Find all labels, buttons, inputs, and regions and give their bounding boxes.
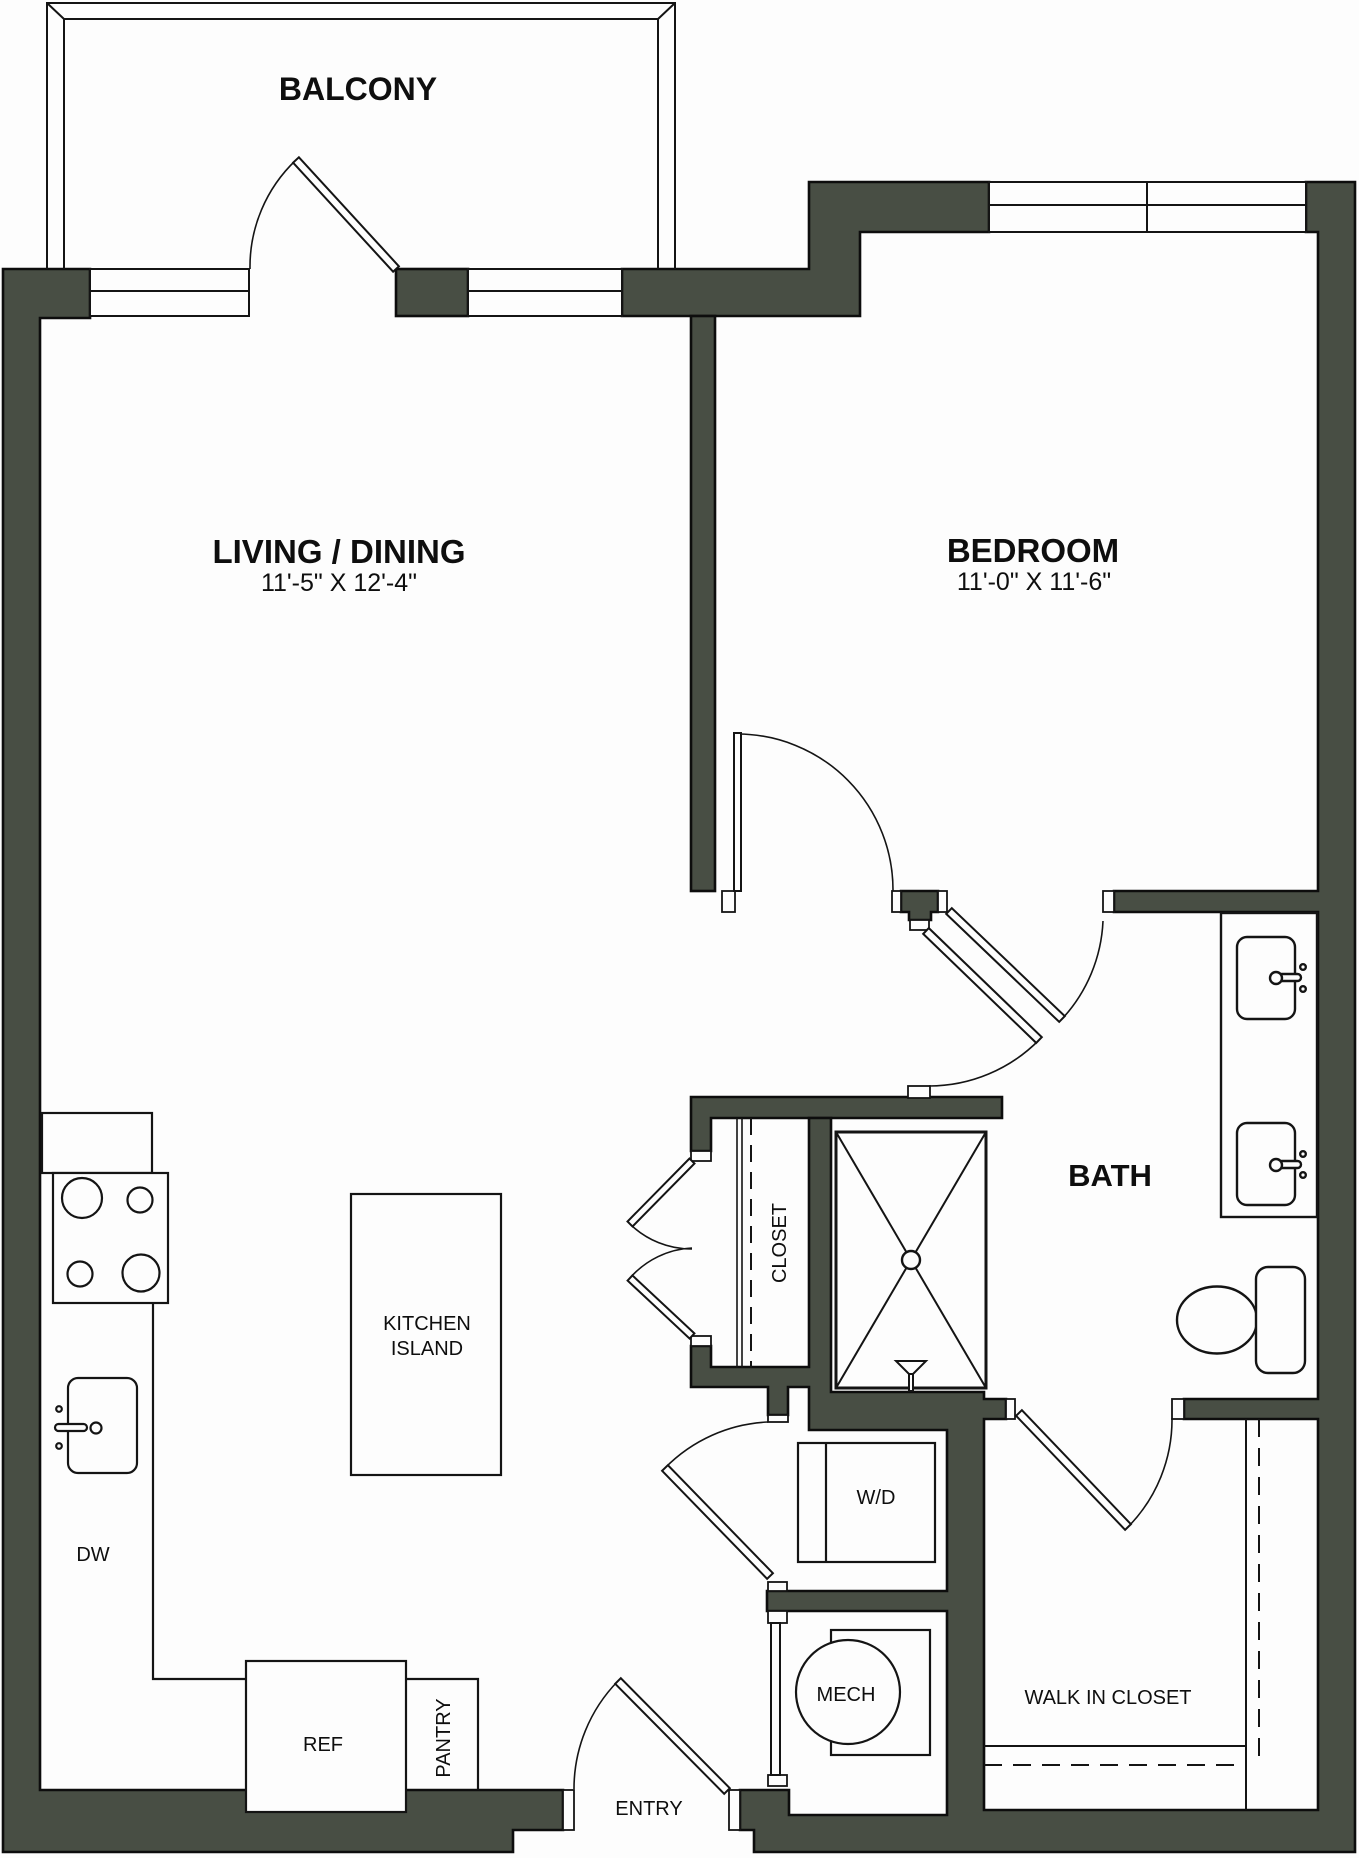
svg-text:PANTRY: PANTRY [433,1698,455,1777]
svg-text:MECH: MECH [817,1684,876,1706]
svg-text:11'-0" X 11'-6": 11'-0" X 11'-6" [957,568,1111,596]
svg-text:WALK IN CLOSET: WALK IN CLOSET [1024,1687,1191,1709]
svg-text:LIVING / DINING: LIVING / DINING [212,533,465,570]
svg-text:BEDROOM: BEDROOM [947,532,1119,569]
svg-text:KITCHEN: KITCHEN [383,1313,471,1335]
svg-text:CLOSET: CLOSET [769,1203,791,1283]
svg-text:BATH: BATH [1068,1158,1152,1193]
svg-text:W/D: W/D [857,1487,896,1509]
svg-text:ISLAND: ISLAND [391,1338,463,1360]
svg-text:REF: REF [303,1734,343,1756]
svg-text:ENTRY: ENTRY [615,1798,682,1820]
svg-text:BALCONY: BALCONY [279,71,437,107]
svg-text:11'-5" X 12'-4": 11'-5" X 12'-4" [261,569,417,597]
svg-text:DW: DW [76,1544,109,1566]
